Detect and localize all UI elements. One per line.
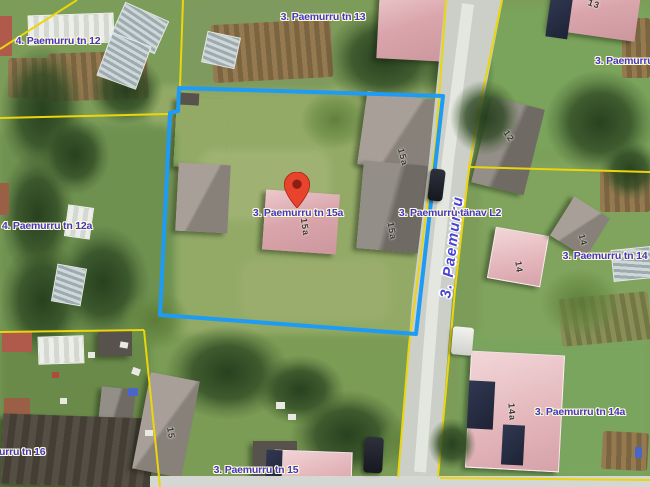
vehicle bbox=[363, 437, 384, 474]
address-label-tanav-l2: 3. Paemurru tänav L2 bbox=[399, 207, 501, 219]
building-number-label: 14a bbox=[506, 403, 517, 422]
location-pin-icon[interactable] bbox=[284, 172, 310, 208]
building-number-label: 15 bbox=[165, 426, 177, 440]
tree-canopy bbox=[428, 418, 476, 470]
address-label-tn16: urru tn 16 bbox=[0, 446, 45, 458]
address-label-tn14a: 3. Paemurru tn 14a bbox=[535, 406, 625, 418]
address-label-tn13: 3. Paemurru tn 13 bbox=[281, 11, 366, 23]
address-label-tn12: 4. Paemurru tn 12 bbox=[16, 35, 101, 47]
ground-object bbox=[635, 447, 642, 458]
vehicle bbox=[451, 326, 474, 356]
tree-canopy bbox=[450, 80, 520, 155]
road-surface-bottom bbox=[150, 476, 650, 487]
building-number-label: 14 bbox=[513, 260, 525, 273]
address-label-tn14: 3. Paemurru tn 14 bbox=[563, 250, 648, 262]
address-label-tn15: 3. Paemurru tn 15 bbox=[214, 464, 299, 476]
address-label-tn12a: 4. Paemurru tn 12a bbox=[2, 220, 92, 232]
map-canvas[interactable]: 4. Paemurru tn 123. Paemurru tn 133. Pae… bbox=[0, 0, 650, 487]
address-label-tn13-right: 3. Paemurru tn 1 bbox=[595, 55, 650, 67]
address-label-tn15a: 3. Paemurru tn 15a bbox=[253, 207, 343, 219]
